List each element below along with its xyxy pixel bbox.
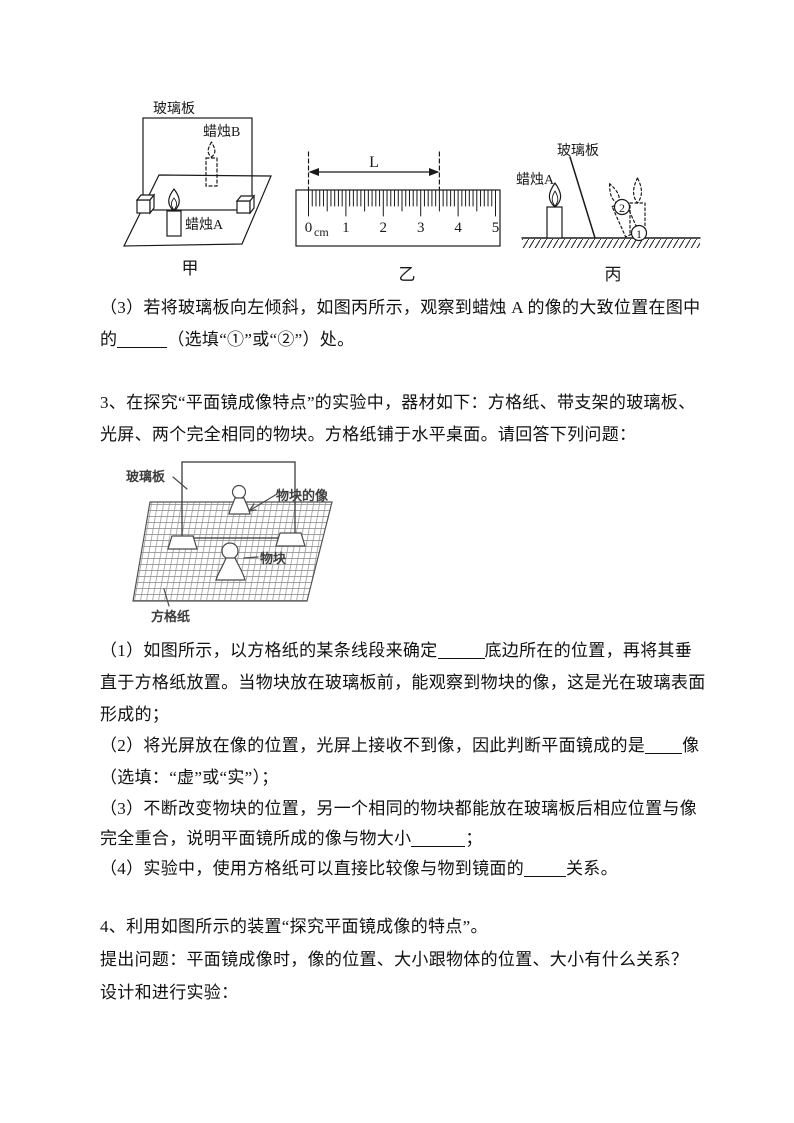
svg-text:1: 1: [636, 227, 642, 241]
text-run: （3）不断改变物块的位置，另一个相同的物块都能放在玻璃板后相应位置与像: [100, 799, 697, 818]
q2-part3-line2: 的（选填“①”或“②”）处。: [100, 329, 354, 350]
text-run: （2）将光屏放在像的位置，光屏上接收不到像，因此判断平面镜成的是: [100, 736, 645, 755]
support-left: [168, 536, 197, 549]
leader-glass-label: [173, 477, 187, 489]
candle-b-label: 蜡烛B: [203, 124, 240, 140]
text-run: 光屏、两个完全相同的物块。方格纸铺于水平桌面。请回答下列问题：: [100, 425, 636, 444]
text-run: （1）如图所示，以方格纸的某条线段来确定: [100, 641, 438, 660]
answer-blank: [438, 641, 485, 659]
answer-blank: [524, 859, 566, 877]
glass-plate-label: 玻璃板: [557, 142, 599, 159]
text-run: ；: [465, 829, 482, 848]
text-run: （选填：“虚”或“实”）；: [100, 768, 279, 787]
svg-text:2: 2: [380, 220, 388, 236]
q3-part2-line2: （选填：“虚”或“实”）；: [100, 767, 279, 788]
text-run: （选填“①”或“②”）处。: [167, 330, 354, 349]
figure-bing: 蜡烛A 玻璃板 2 1 丙: [516, 142, 700, 284]
svg-text:0: 0: [305, 220, 313, 236]
text-run: 提出问题：平面镜成像时，像的位置、大小跟物体的位置、大小有什么关系？: [100, 950, 688, 969]
q4-line1: 4、利用如图所示的装置“探究平面镜成像的特点”。: [100, 916, 488, 937]
figure-jia: 玻璃板 蜡烛A: [124, 100, 271, 278]
answer-blank: [411, 829, 465, 847]
block-label: 物块: [260, 551, 287, 566]
support-right: [276, 533, 305, 546]
candle-a: [547, 183, 562, 238]
support-cube-right: [237, 196, 254, 213]
block-image: [229, 486, 250, 515]
text-run: 直于方格纸放置。当物块放在玻璃板前，能观察到物块的像，这是光在玻璃表面: [100, 673, 706, 692]
q3-part3-line2: 完全重合，说明平面镜所成的像与物大小；: [100, 828, 483, 849]
candle-b-image: [206, 142, 217, 186]
q4-line3: 设计和进行实验：: [100, 982, 238, 1003]
glass-plate-tilted: [570, 157, 595, 238]
text-run: （4）实验中，使用方格纸可以直接比较像与物到镜面的: [100, 859, 524, 878]
q3-intro-line2: 光屏、两个完全相同的物块。方格纸铺于水平桌面。请回答下列问题：: [100, 424, 636, 445]
svg-text:3: 3: [417, 220, 425, 236]
flame-icon: [208, 142, 215, 157]
text-run: 的: [100, 330, 117, 349]
candle-a-label: 蜡烛A: [516, 172, 555, 188]
figure-yi-caption: 乙: [399, 265, 416, 284]
text-run: 底边所在的位置，再将其垂: [485, 641, 693, 660]
svg-text:4: 4: [454, 220, 462, 236]
figure-experiment-setups: 玻璃板 蜡烛A: [85, 88, 710, 288]
worksheet-page: 玻璃板 蜡烛A: [0, 0, 794, 1123]
text-run: 像: [682, 736, 699, 755]
support-cube-left: [137, 195, 154, 213]
q3-part2-line1: （2）将光屏放在像的位置，光屏上接收不到像，因此判断平面镜成的是像: [100, 735, 699, 756]
figure-yi: L 0 cm 1 2 3 4 5 乙: [296, 152, 500, 284]
ruler-ticks: [309, 190, 496, 216]
figure-bing-caption: 丙: [605, 265, 622, 284]
position-marker-1: 1: [632, 226, 647, 242]
q4-line2: 提出问题：平面镜成像时，像的位置、大小跟物体的位置、大小有什么关系？: [100, 949, 688, 970]
glass-plate-label: 玻璃板: [126, 469, 166, 484]
position-marker-2: 2: [615, 200, 630, 216]
q3-part1-line2: 直于方格纸放置。当物块放在玻璃板前，能观察到物块的像，这是光在玻璃表面: [100, 672, 706, 693]
figure-grid-paper-setup: 玻璃板 物块的像 物块 方格纸: [85, 458, 355, 633]
flame-icon: [634, 178, 642, 203]
text-run: 形成的；: [100, 705, 169, 724]
ruler-numbers: 0 cm 1 2 3 4 5: [305, 220, 500, 239]
glass-plate-label: 玻璃板: [153, 100, 195, 117]
q3-intro-line1: 3、在探究“平面镜成像特点”的实验中，器材如下：方格纸、带支架的玻璃板、: [100, 392, 695, 413]
flame-icon: [169, 189, 180, 211]
candle-a-label: 蜡烛A: [185, 217, 224, 233]
length-label: L: [369, 154, 379, 171]
q3-part1-line1: （1）如图所示，以方格纸的某条线段来确定底边所在的位置，再将其垂: [100, 640, 692, 661]
text-run: （3）若将玻璃板向左倾斜，如图丙所示，观察到蜡烛 A 的像的大致位置在图中: [100, 298, 700, 317]
text-run: 完全重合，说明平面镜所成的像与物大小: [100, 829, 411, 848]
q3-part4-line: （4）实验中，使用方格纸可以直接比较像与物到镜面的关系。: [100, 858, 618, 879]
text-run: 4、利用如图所示的装置“探究平面镜成像的特点”。: [100, 917, 488, 936]
answer-blank: [645, 736, 682, 754]
candle-a: [167, 189, 181, 236]
text-run: 设计和进行实验：: [100, 983, 238, 1002]
figure-jia-caption: 甲: [182, 259, 199, 278]
ground-hatching: [522, 239, 700, 248]
svg-text:cm: cm: [314, 225, 329, 239]
text-run: 3、在探究“平面镜成像特点”的实验中，器材如下：方格纸、带支架的玻璃板、: [100, 393, 695, 412]
svg-text:5: 5: [492, 220, 500, 236]
answer-blank: [117, 330, 167, 348]
grid-paper-label: 方格纸: [151, 609, 190, 624]
block-image-label: 物块的像: [276, 488, 329, 503]
text-run: 关系。: [566, 859, 618, 878]
q2-part3-line1: （3）若将玻璃板向左倾斜，如图丙所示，观察到蜡烛 A 的像的大致位置在图中: [100, 297, 700, 318]
image-candle-1: [630, 178, 645, 233]
q3-part1-line3: 形成的；: [100, 704, 169, 725]
q3-part3-line1: （3）不断改变物块的位置，另一个相同的物块都能放在玻璃板后相应位置与像: [100, 798, 697, 819]
svg-text:2: 2: [619, 201, 625, 215]
svg-text:1: 1: [342, 220, 350, 236]
